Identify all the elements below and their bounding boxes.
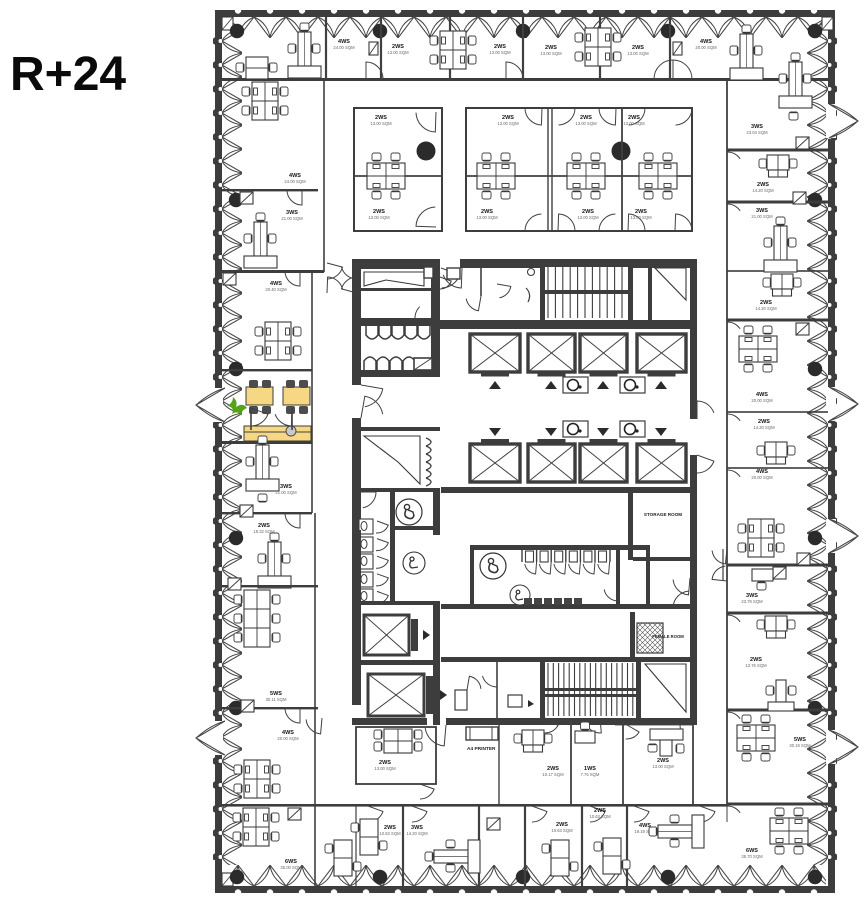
svg-text:13.76 SQM: 13.76 SQM <box>745 663 767 668</box>
svg-text:13.00 SQM: 13.00 SQM <box>540 51 562 56</box>
svg-text:13.00 SQM: 13.00 SQM <box>623 121 645 126</box>
svg-text:10.17 SQM: 10.17 SQM <box>542 772 564 777</box>
svg-text:21.00 SQM: 21.00 SQM <box>281 216 303 221</box>
svg-text:23.76 SQM: 23.76 SQM <box>741 599 763 604</box>
svg-text:20.00 SQM: 20.00 SQM <box>695 45 717 50</box>
svg-text:24.00 SQM: 24.00 SQM <box>333 45 355 50</box>
svg-text:35.70 SQM: 35.70 SQM <box>741 854 763 859</box>
svg-text:14.20 SQM: 14.20 SQM <box>406 831 428 836</box>
svg-text:13.00 SQM: 13.00 SQM <box>370 121 392 126</box>
svg-text:STORAGE ROOM: STORAGE ROOM <box>644 512 682 517</box>
svg-text:20.00 SQM: 20.00 SQM <box>751 475 773 480</box>
svg-text:7.76 SQM: 7.76 SQM <box>581 772 600 777</box>
svg-text:30.19 SQM: 30.19 SQM <box>789 743 811 748</box>
svg-text:30.11 SQM: 30.11 SQM <box>266 697 287 702</box>
svg-text:13.00 SQM: 13.00 SQM <box>489 50 511 55</box>
svg-text:10.63 SQM: 10.63 SQM <box>551 828 573 833</box>
svg-text:13.00 SQM: 13.00 SQM <box>497 121 519 126</box>
svg-text:A4 PRINTER: A4 PRINTER <box>467 746 496 752</box>
svg-text:13.00 SQM: 13.00 SQM <box>368 215 390 220</box>
svg-text:23.04 SQM: 23.04 SQM <box>746 130 768 135</box>
svg-text:20.40 SQM: 20.40 SQM <box>265 287 287 292</box>
svg-text:R+24: R+24 <box>10 48 126 101</box>
svg-text:14.20 SQM: 14.20 SQM <box>753 425 775 430</box>
svg-text:FEMALE ROOM: FEMALE ROOM <box>652 634 684 639</box>
svg-text:10.63 SQM: 10.63 SQM <box>589 814 611 819</box>
svg-text:10.63 SQM: 10.63 SQM <box>379 831 401 836</box>
svg-text:13.00 SQM: 13.00 SQM <box>577 215 599 220</box>
svg-text:13.00 SQM: 13.00 SQM <box>387 50 409 55</box>
svg-text:21.00 SQM: 21.00 SQM <box>751 214 773 219</box>
svg-text:14.20 SQM: 14.20 SQM <box>752 188 774 193</box>
svg-text:24.00 SQM: 24.00 SQM <box>284 179 306 184</box>
svg-text:20.00 SQM: 20.00 SQM <box>751 398 773 403</box>
svg-text:35.00 SQM: 35.00 SQM <box>280 865 302 870</box>
svg-text:13.00 SQM: 13.00 SQM <box>627 51 649 56</box>
svg-text:13.00 SQM: 13.00 SQM <box>652 764 674 769</box>
svg-text:13.00 SQM: 13.00 SQM <box>630 215 652 220</box>
svg-text:20.00 SQM: 20.00 SQM <box>277 736 299 741</box>
svg-text:21.00 SQM: 21.00 SQM <box>275 490 297 495</box>
svg-text:14.20 SQM: 14.20 SQM <box>755 306 777 311</box>
svg-text:13.00 SQM: 13.00 SQM <box>476 215 498 220</box>
svg-text:13.00 SQM: 13.00 SQM <box>374 766 396 771</box>
svg-text:13.00 SQM: 13.00 SQM <box>575 121 597 126</box>
